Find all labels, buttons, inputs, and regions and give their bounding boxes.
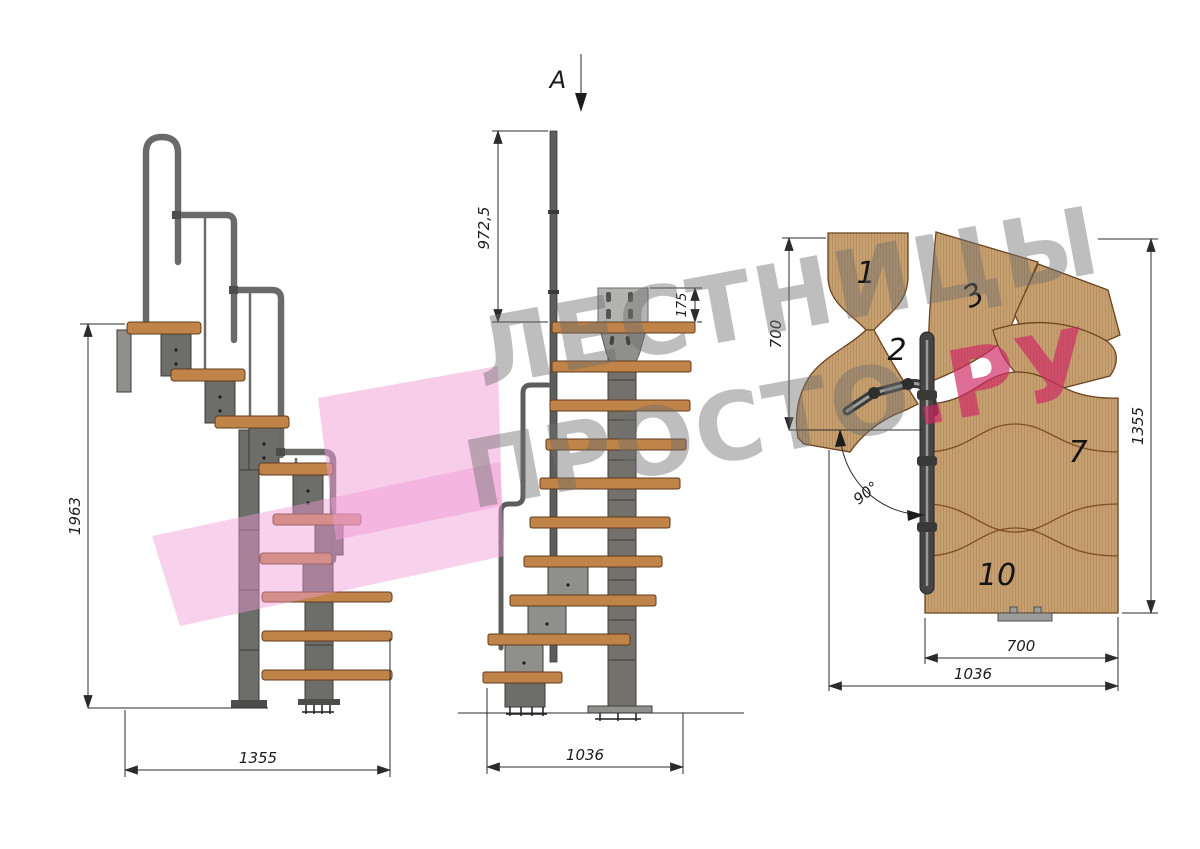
stair-drawing-canvas: A [0,0,1200,849]
dim-front-width-label: 1036 [566,746,604,764]
wall-bracket [117,330,131,392]
staircase-technical-drawing: A [0,0,1200,849]
dim-front-post-height: 972,5 [475,131,548,322]
dim-side-height: 1963 [66,324,125,708]
section-marker: A [548,54,587,112]
dim-front-post-height-label: 972,5 [475,207,493,250]
tread-number-1: 1 [856,256,875,291]
dim-plan-upper-depth-label: 700 [767,320,785,349]
dim-front-plate: 175 [650,288,702,322]
section-arrow-icon [575,93,587,112]
front-central-column [588,340,652,721]
dim-side-length-label: 1355 [239,749,277,767]
tread-number-10: 10 [978,558,1016,593]
dim-front-plate-label: 175 [675,293,690,318]
tread-number-2: 2 [887,333,906,368]
top-plan-view: 90° 1 2 3 7 10 700 1355 700 [767,232,1158,691]
dim-side-height-label: 1963 [66,497,84,535]
tread-number-7: 7 [1068,435,1087,470]
dim-plan-flight-width-label: 700 [1007,637,1036,655]
section-label: A [548,66,566,94]
plan-straight-flight [925,372,1118,613]
front-elevation-view: 972,5 175 1036 [458,131,744,774]
dim-plan-total-depth-label: 1355 [1129,407,1147,445]
dim-plan-total-width-label: 1036 [954,665,992,683]
plan-angle-label: 90° [850,478,882,509]
